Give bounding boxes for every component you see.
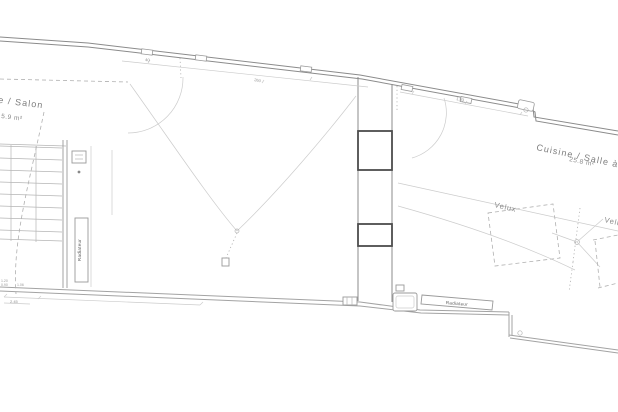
dim-260: 260 — [254, 77, 262, 83]
outlet-dot-icon — [78, 171, 81, 174]
radiator-left: Radiateur — [72, 151, 88, 282]
bottom-wall — [0, 287, 618, 353]
room-labels: e / Salon 5.9 m² Cuisine / Salle à ma 25… — [0, 95, 618, 229]
small-box — [396, 285, 404, 291]
dim-245: 2.45 — [10, 299, 19, 304]
floor-plan-drawing: Radiateur — [0, 0, 618, 412]
middle-wall — [358, 77, 397, 302]
electrical-panel-icon — [72, 151, 86, 163]
dim-090: 0.90 — [1, 283, 8, 287]
switch-icon — [222, 258, 229, 266]
chimney-block-upper — [358, 131, 392, 170]
velux-outline — [488, 204, 560, 266]
salon-wiring — [130, 84, 356, 266]
cuisine-wiring — [398, 183, 618, 292]
dim-40: 40 — [145, 57, 151, 63]
floor-plan-canvas: Radiateur — [0, 0, 618, 412]
dim-106: 1.06 — [17, 283, 24, 287]
salon-area-label: 5.9 m² — [1, 113, 23, 123]
top-wall — [0, 37, 618, 135]
staircase — [0, 140, 112, 288]
door-swing-arc — [15, 112, 44, 294]
door-swing-arc — [412, 98, 446, 158]
radiator-left-label: Radiateur — [77, 239, 82, 261]
velux-2-label: Velux — [604, 215, 618, 229]
salon-room-label: e / Salon — [0, 95, 44, 110]
wall-notch — [517, 99, 535, 111]
door-swing-arc — [128, 77, 183, 133]
circle-marker-icon — [518, 331, 522, 335]
small-radiator — [343, 297, 357, 305]
chimney-block-lower — [358, 224, 392, 246]
